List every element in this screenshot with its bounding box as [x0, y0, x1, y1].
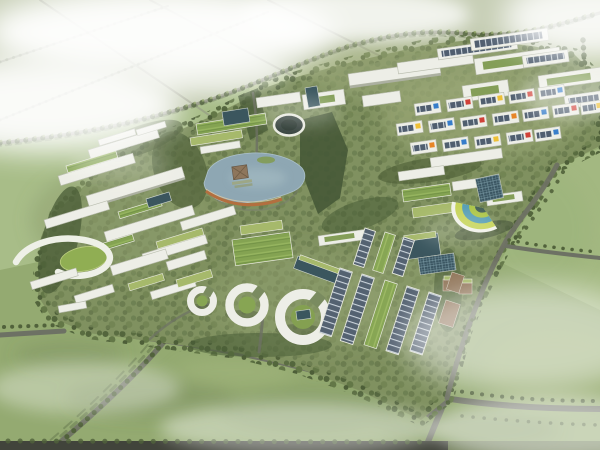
- fog-layer: [0, 0, 600, 450]
- atmospheric-veil: [0, 0, 600, 450]
- aerial-rendering-image: [0, 0, 600, 450]
- aerial-rendering-svg: [0, 0, 600, 450]
